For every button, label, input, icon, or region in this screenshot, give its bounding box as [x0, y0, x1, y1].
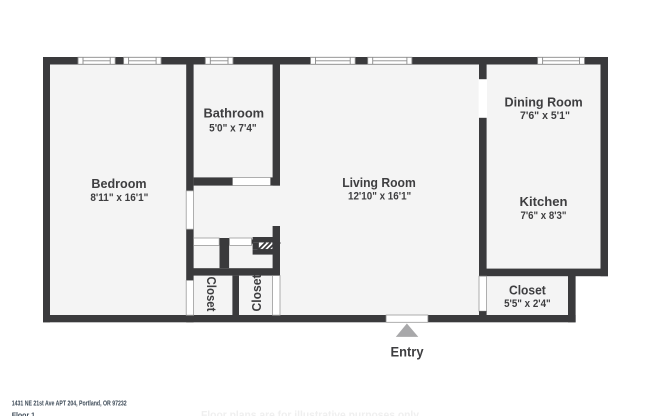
svg-text:Floor plans are for illustrati: Floor plans are for illustrative purpose… [201, 410, 420, 416]
svg-text:Closet: Closet [249, 274, 264, 312]
svg-text:8'11" x 16'1": 8'11" x 16'1" [90, 192, 148, 204]
svg-text:5'5" x 2'4": 5'5" x 2'4" [504, 298, 551, 310]
svg-text:Entry: Entry [391, 345, 424, 360]
svg-text:12'10" x 16'1": 12'10" x 16'1" [348, 191, 411, 203]
svg-text:Closet: Closet [509, 283, 546, 298]
svg-text:Closet: Closet [204, 277, 219, 313]
svg-text:Dining Room: Dining Room [505, 95, 583, 110]
svg-text:Living Room: Living Room [342, 175, 416, 190]
svg-text:Bedroom: Bedroom [91, 176, 146, 191]
svg-text:7'6" x 8'3": 7'6" x 8'3" [521, 210, 567, 222]
svg-text:Floor 1: Floor 1 [12, 413, 35, 416]
svg-text:Bathroom: Bathroom [204, 106, 265, 121]
svg-text:5'0" x 7'4": 5'0" x 7'4" [209, 123, 257, 135]
svg-text:1431 NE 21st Ave APT 204, Port: 1431 NE 21st Ave APT 204, Portland, OR 9… [12, 401, 127, 408]
svg-text:Kitchen: Kitchen [520, 194, 568, 209]
svg-text:7'6" x 5'1": 7'6" x 5'1" [520, 110, 570, 122]
